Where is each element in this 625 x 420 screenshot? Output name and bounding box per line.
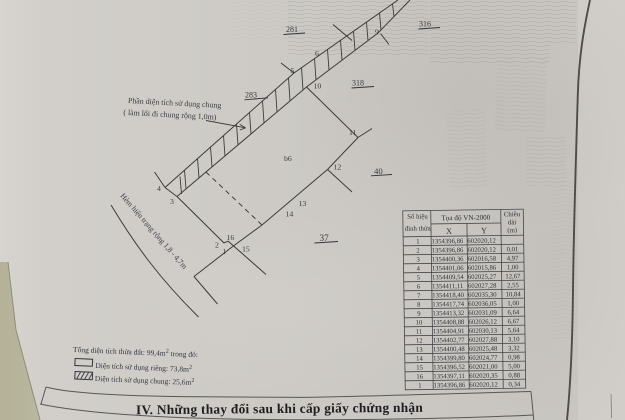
svg-text:6: 6 <box>315 49 319 58</box>
svg-text:16: 16 <box>227 233 235 242</box>
svg-text:602024,77: 602024,77 <box>469 355 498 362</box>
svg-text:12,67: 12,67 <box>505 273 521 280</box>
svg-text:1354400,48: 1354400,48 <box>433 346 466 353</box>
svg-text:1354396,86: 1354396,86 <box>431 238 464 245</box>
svg-text:602036,05: 602036,05 <box>468 301 497 308</box>
svg-text:1354418,40: 1354418,40 <box>432 292 465 299</box>
svg-text:40: 40 <box>374 166 383 176</box>
svg-text:0,01: 0,01 <box>507 246 519 253</box>
svg-text:14: 14 <box>286 210 294 219</box>
svg-text:602027,28: 602027,28 <box>468 283 497 290</box>
svg-text:1354401,06: 1354401,06 <box>432 265 465 272</box>
svg-text:12: 12 <box>334 163 342 172</box>
svg-text:281: 281 <box>286 25 298 34</box>
svg-text:1,00: 1,00 <box>507 300 519 307</box>
svg-text:1354397,11: 1354397,11 <box>433 373 465 380</box>
svg-text:9: 9 <box>375 28 379 37</box>
svg-text:11: 11 <box>349 128 357 137</box>
svg-text:602031,09: 602031,09 <box>468 310 497 317</box>
svg-text:11: 11 <box>416 329 423 336</box>
svg-text:X: X <box>446 227 452 236</box>
svg-text:602020,12: 602020,12 <box>469 382 498 389</box>
svg-text:602020,35: 602020,35 <box>469 373 498 380</box>
svg-text:1: 1 <box>416 239 419 246</box>
svg-text:1354413,32: 1354413,32 <box>432 310 464 317</box>
svg-text:602030,13: 602030,13 <box>469 328 498 335</box>
svg-text:602027,88: 602027,88 <box>469 337 498 344</box>
svg-text:3,32: 3,32 <box>508 345 520 352</box>
svg-text:1: 1 <box>223 247 227 256</box>
svg-text:6,67: 6,67 <box>508 318 520 325</box>
svg-text:IV. Những thay đổi sau khi cấp: IV. Những thay đổi sau khi cấp giấy chứn… <box>136 400 423 418</box>
svg-text:316: 316 <box>419 20 431 29</box>
svg-text:12: 12 <box>416 338 423 345</box>
svg-text:2: 2 <box>416 248 419 255</box>
svg-text:1354400,36: 1354400,36 <box>432 256 465 263</box>
svg-text:283: 283 <box>245 91 257 100</box>
svg-text:15: 15 <box>242 245 250 254</box>
svg-text:1354402,77: 1354402,77 <box>433 337 466 344</box>
svg-text:602025,27: 602025,27 <box>468 274 497 281</box>
svg-text:4,97: 4,97 <box>507 255 519 262</box>
svg-text:dài: dài <box>508 219 517 226</box>
svg-text:10,84: 10,84 <box>506 291 522 298</box>
svg-text:0,88: 0,88 <box>508 372 520 379</box>
svg-text:4: 4 <box>157 184 161 193</box>
svg-text:2: 2 <box>215 241 219 250</box>
svg-text:15: 15 <box>416 365 423 372</box>
svg-text:2,55: 2,55 <box>507 282 519 289</box>
svg-text:37: 37 <box>320 233 330 243</box>
svg-text:1354409,54: 1354409,54 <box>432 274 465 281</box>
svg-text:602016,58: 602016,58 <box>468 256 497 263</box>
svg-text:1354399,80: 1354399,80 <box>433 355 466 362</box>
svg-text:13: 13 <box>416 347 423 354</box>
svg-text:3: 3 <box>170 197 174 206</box>
svg-text:6,64: 6,64 <box>507 309 519 316</box>
svg-text:1354408,88: 1354408,88 <box>433 319 466 326</box>
svg-text:1354396,86: 1354396,86 <box>433 382 466 389</box>
svg-text:602021,00: 602021,00 <box>469 364 498 371</box>
svg-text:Chiều: Chiều <box>504 211 521 218</box>
svg-text:Y: Y <box>481 226 487 235</box>
svg-text:5,00: 5,00 <box>508 363 520 370</box>
svg-text:602035,30: 602035,30 <box>468 292 497 299</box>
svg-text:1354396,86: 1354396,86 <box>432 247 465 254</box>
svg-text:Số hiệu: Số hiệu <box>407 213 428 220</box>
svg-text:1354404,91: 1354404,91 <box>433 328 465 335</box>
svg-text:0,98: 0,98 <box>508 354 520 361</box>
svg-text:đỉnh thửa: đỉnh thửa <box>405 225 431 232</box>
svg-text:3,10: 3,10 <box>508 336 520 343</box>
svg-text:1354417,74: 1354417,74 <box>432 301 465 308</box>
svg-text:318: 318 <box>352 79 364 88</box>
svg-text:14: 14 <box>416 356 423 363</box>
svg-text:602015,86: 602015,86 <box>468 265 497 272</box>
svg-text:10: 10 <box>314 82 322 91</box>
svg-text:13: 13 <box>299 199 307 208</box>
svg-text:Tọa độ VN-2000: Tọa độ VN-2000 <box>441 214 490 223</box>
svg-text:b6: b6 <box>284 154 292 163</box>
svg-text:10: 10 <box>416 320 423 327</box>
svg-text:602020,12: 602020,12 <box>467 247 496 254</box>
svg-text:0,34: 0,34 <box>508 381 520 388</box>
svg-text:602026,12: 602026,12 <box>468 319 497 326</box>
svg-text:(m): (m) <box>507 227 517 234</box>
svg-text:1: 1 <box>418 383 421 390</box>
svg-text:1354396,52: 1354396,52 <box>433 364 465 371</box>
svg-text:1,00: 1,00 <box>507 264 519 271</box>
svg-text:1354411,11: 1354411,11 <box>432 283 463 290</box>
svg-text:602020,12: 602020,12 <box>467 238 496 245</box>
svg-text:5: 5 <box>291 66 295 75</box>
svg-text:5,64: 5,64 <box>508 327 520 334</box>
svg-text:602025,48: 602025,48 <box>469 346 498 353</box>
svg-text:16: 16 <box>416 374 423 381</box>
